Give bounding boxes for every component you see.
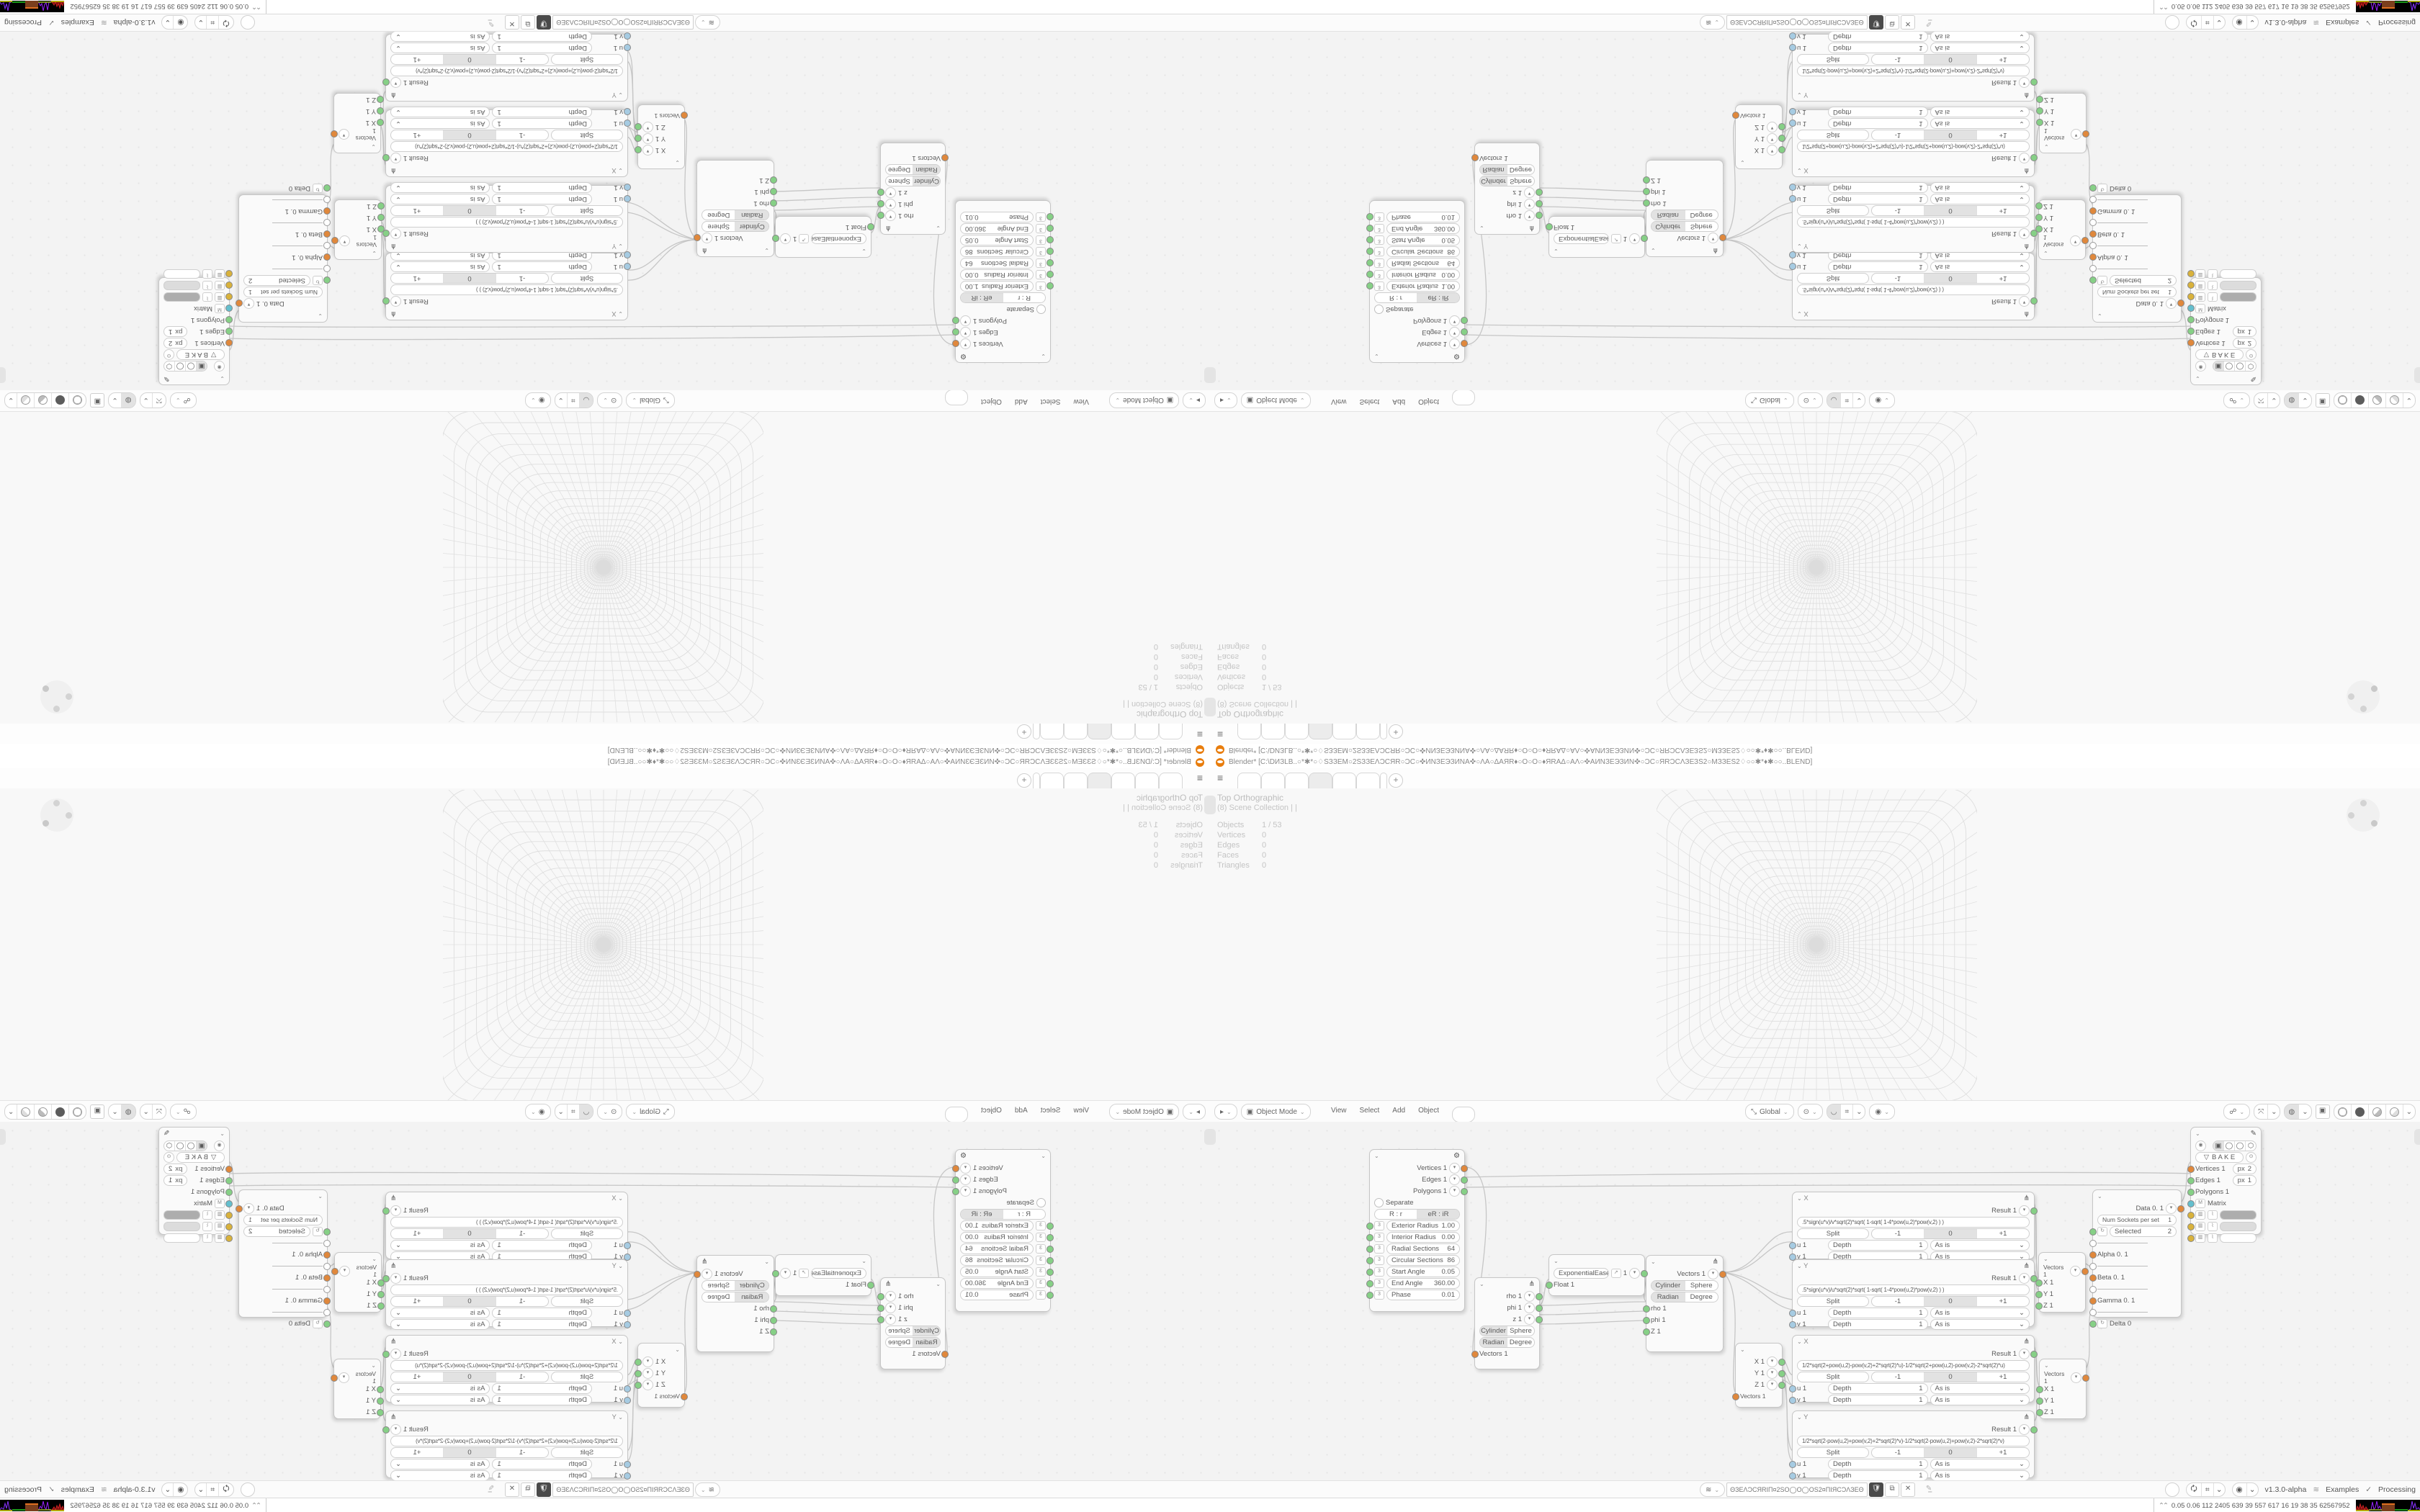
gizmo-toggle[interactable]: ⤧⌄ bbox=[2254, 1104, 2280, 1120]
workspace-tab[interactable] bbox=[1135, 723, 1159, 739]
viewport-3d[interactable]: Top Orthographic (8) Scene Collection | … bbox=[0, 788, 1210, 1100]
vertex-color-swatch[interactable] bbox=[2220, 1210, 2257, 1220]
depth-field[interactable]: Depth1 bbox=[493, 1470, 593, 1481]
draft-group[interactable]: ◉⌄ bbox=[2232, 1482, 2259, 1497]
face-color-swatch[interactable] bbox=[2220, 270, 2257, 279]
fake-user-button[interactable]: 🛡 bbox=[1869, 1482, 1883, 1497]
menu-add[interactable]: Add bbox=[1015, 390, 1028, 405]
copy-button[interactable]: ⧉ bbox=[1885, 15, 1899, 30]
display-toggle-group[interactable]: ▣◯◯⬡ bbox=[2213, 1140, 2257, 1151]
pivot-dropdown[interactable]: ⊙⌄ bbox=[597, 392, 622, 408]
tree-select-dropdown[interactable]: ≋⌄ bbox=[695, 15, 720, 30]
shading-mode-group[interactable]: ⌄ bbox=[4, 392, 86, 408]
torus-mode-segmented[interactable]: R : reR : iR bbox=[1374, 293, 1460, 304]
split-button[interactable]: Split bbox=[1797, 1447, 1869, 1458]
field-radial-sections[interactable]: Radial Sections64 bbox=[1386, 1243, 1460, 1254]
search-button[interactable] bbox=[945, 390, 968, 405]
workspace-tab-active[interactable] bbox=[1309, 723, 1332, 739]
mode-dropdown[interactable]: ▣ Object Mode⌄ bbox=[1109, 392, 1179, 408]
node-vector-polar-output[interactable]: ⌄⋔ rho 1▾ phi 1▾ z 1▾ CylinderSphere Rad… bbox=[1474, 143, 1540, 235]
node-formula-x2[interactable]: ⌄ X⋔ Result 1▾ 1/2*sqrt(2+pow(u,2)-pow(v… bbox=[1792, 109, 2035, 177]
examples-menu[interactable]: Examples bbox=[2326, 18, 2359, 27]
formula-expression-field[interactable]: .5*sign(u*v)/v*sqrt(2)*sqrt( 1-sqrt( 1-4… bbox=[390, 285, 623, 296]
field-interior-radius[interactable]: Interior Radius0.00 bbox=[1386, 270, 1460, 281]
coord-system-segmented[interactable]: CylinderSphere bbox=[1651, 1280, 1718, 1291]
angle-unit-segmented[interactable]: RadianDegree bbox=[1651, 1292, 1718, 1302]
ne-toolbar-collapse-tab[interactable] bbox=[1204, 1129, 1210, 1145]
pin-icon[interactable]: ✎̲ bbox=[485, 16, 498, 29]
depth-field[interactable]: Depth1 bbox=[1828, 1383, 1928, 1394]
pin-icon[interactable]: ✎̲ bbox=[1922, 1483, 1935, 1496]
field-start-angle[interactable]: Start Angle0.05 bbox=[1386, 235, 1460, 246]
node-formula-y2[interactable]: ⌄ Y⋔ Result 1▾ 1/2*sqrt(2-pow(u,2)+pow(v… bbox=[1792, 1410, 2035, 1478]
workspace-tab[interactable] bbox=[1237, 723, 1261, 739]
split-button[interactable]: Split bbox=[551, 1296, 623, 1307]
offset-segmented[interactable]: -10+1 bbox=[390, 1296, 549, 1307]
copy-button[interactable]: ⧉ bbox=[521, 1482, 535, 1497]
menu-add[interactable]: Add bbox=[1392, 390, 1405, 405]
split-button[interactable]: Split bbox=[551, 130, 623, 141]
node-vector-out[interactable]: ⌄ X 1▾ Y 1▾ Z 1▾ Vectors 1 bbox=[637, 1343, 685, 1408]
formula-expression-field[interactable]: 1/2*sqrt(2+pow(u,2)-pow(v,2)+2*sqrt(2)*u… bbox=[390, 1360, 623, 1371]
menu-add[interactable]: Add bbox=[1392, 1107, 1405, 1122]
field-radial-sections[interactable]: Radial Sections64 bbox=[960, 1243, 1034, 1254]
asis-dropdown[interactable]: As is⌄ bbox=[1930, 1308, 2030, 1318]
field-start-angle[interactable]: Start Angle0.05 bbox=[960, 1266, 1034, 1277]
asis-dropdown[interactable]: As is⌄ bbox=[390, 107, 490, 118]
depth-field[interactable]: Depth1 bbox=[1828, 262, 1928, 273]
node-vector-in-1[interactable]: ⌄ Vectors 1▾ X 1 Y 1 Z 1 bbox=[2038, 1252, 2086, 1313]
proportional-edit-dropdown[interactable]: ◉⌄ bbox=[525, 392, 550, 408]
snap-group[interactable]: ◡⌗⌄ bbox=[1827, 1104, 1866, 1120]
edge-width-field[interactable]: px1 bbox=[163, 327, 187, 338]
toolbar-collapse-tab[interactable] bbox=[1210, 796, 1216, 814]
vertex-color-swatch[interactable] bbox=[2220, 293, 2257, 302]
add-workspace-button[interactable]: + bbox=[1389, 724, 1403, 739]
shading-mode-group[interactable]: ⌄ bbox=[2334, 392, 2416, 408]
selected-field[interactable]: Selected2 bbox=[2110, 1226, 2177, 1237]
field-start-angle[interactable]: Start Angle0.05 bbox=[1386, 1266, 1460, 1277]
node-viewer-draw[interactable]: ⌄✎ ◉ ▣◯◯⬡ ▽B A K E⊙ Vertices 1 px2 Edges… bbox=[2190, 277, 2262, 385]
collapse-icon[interactable]: ⌃⌃ bbox=[2159, 1502, 2167, 1510]
depth-field[interactable]: Depth1 bbox=[493, 183, 593, 194]
workspace-tab[interactable] bbox=[1040, 773, 1064, 789]
offset-segmented[interactable]: -10+1 bbox=[1871, 1228, 2030, 1239]
display-toggle-group[interactable]: ▣◯◯⬡ bbox=[163, 361, 207, 372]
workspace-tab[interactable] bbox=[1033, 773, 1040, 789]
num-sockets-field[interactable]: Num Sockets per set1 bbox=[243, 1215, 323, 1225]
field-start-angle[interactable]: Start Angle0.05 bbox=[960, 235, 1034, 246]
node-data-input[interactable]: ⌄ Data 0. 1▾ Num Sockets per set1 ↻Selec… bbox=[2092, 194, 2182, 323]
angle-unit-segmented[interactable]: RadianDegree bbox=[885, 165, 941, 176]
overlays-toggle[interactable]: ◍⌄ bbox=[108, 392, 135, 408]
asis-dropdown[interactable]: As is⌄ bbox=[390, 194, 490, 205]
edge-width-field[interactable]: px1 bbox=[2233, 327, 2257, 338]
unlink-button[interactable]: ✕ bbox=[1901, 15, 1915, 30]
field-phase[interactable]: Phase0.01 bbox=[1386, 212, 1460, 223]
mode-dropdown[interactable]: ▣ Object Mode⌄ bbox=[1109, 1104, 1179, 1120]
asis-dropdown[interactable]: As is⌄ bbox=[1930, 43, 2030, 54]
node-formula-y1[interactable]: ⌄ Y⋔ Result 1▾ .5*sign(u*v)/u*sqrt(2)*sq… bbox=[1792, 1259, 2035, 1327]
split-button[interactable]: Split bbox=[551, 1447, 623, 1458]
editor-type-button[interactable]: ▸⌄ bbox=[1214, 1104, 1237, 1120]
hamburger-menu-icon[interactable]: ≡ bbox=[1217, 729, 1223, 740]
workspace-tab[interactable] bbox=[1111, 773, 1135, 789]
asis-dropdown[interactable]: As is⌄ bbox=[1930, 262, 2030, 273]
node-vector-polar-input[interactable]: ⌄⋔ Vectors 1▾ CylinderSphere RadianDegre… bbox=[696, 160, 774, 257]
node-vector-out[interactable]: ⌄ X 1▾ Y 1▾ Z 1▾ Vectors 1 bbox=[1735, 1343, 1783, 1408]
workspace-tab[interactable] bbox=[1356, 723, 1380, 739]
workspace-tab[interactable] bbox=[1040, 723, 1064, 739]
formula-expression-field[interactable]: .5*sign(u*v)/v*sqrt(2)*sqrt( 1-sqrt( 1-4… bbox=[390, 1217, 623, 1228]
offset-segmented[interactable]: -10+1 bbox=[1871, 55, 2030, 66]
depth-field[interactable]: Depth1 bbox=[493, 1395, 593, 1405]
menu-select[interactable]: Select bbox=[1041, 1107, 1061, 1122]
blank-circle-button[interactable] bbox=[241, 1482, 255, 1497]
fake-user-button[interactable]: 🛡 bbox=[537, 15, 551, 30]
bake-button[interactable]: ▽B A K E bbox=[176, 350, 225, 361]
depth-field[interactable]: Depth1 bbox=[1828, 1395, 1928, 1405]
field-interior-radius[interactable]: Interior Radius0.00 bbox=[960, 1232, 1034, 1243]
add-workspace-button[interactable]: + bbox=[1389, 773, 1403, 788]
num-sockets-field[interactable]: Num Sockets per set1 bbox=[2097, 287, 2177, 298]
workspace-tab-active[interactable] bbox=[1088, 773, 1111, 789]
node-formula-x1[interactable]: ⌄ X⋔ Result 1▾ .5*sign(u*v)/v*sqrt(2)*sq… bbox=[1792, 253, 2035, 320]
node-vector-out[interactable]: ⌄ X 1▾ Y 1▾ Z 1▾ Vectors 1 bbox=[1735, 104, 1783, 169]
node-torus[interactable]: ⌄⚙ Vertices 1▾ Edges 1▾ Polygons 1▾ Sepa… bbox=[955, 1149, 1051, 1312]
orientation-dropdown[interactable]: ⤡ Global⌄ bbox=[626, 1104, 675, 1120]
toolbar-collapse-tab[interactable] bbox=[1210, 698, 1216, 716]
asis-dropdown[interactable]: As is⌄ bbox=[390, 1308, 490, 1318]
tree-select-dropdown[interactable]: ≋⌄ bbox=[695, 1482, 720, 1497]
menu-object[interactable]: Object bbox=[1418, 1107, 1439, 1122]
overlays-toggle[interactable]: ◍⌄ bbox=[2284, 1104, 2311, 1120]
split-button[interactable]: Split bbox=[1797, 206, 1869, 217]
depth-field[interactable]: Depth1 bbox=[1828, 1319, 1928, 1330]
node-data-input[interactable]: ⌄ Data 0. 1▾ Num Sockets per set1 ↻Selec… bbox=[238, 1189, 328, 1318]
formula-expression-field[interactable]: .5*sign(u*v)/u*sqrt(2)*sqrt( 1-sqrt( 1-4… bbox=[390, 1284, 623, 1295]
xray-toggle[interactable]: ▣ bbox=[90, 1104, 104, 1119]
formula-expression-field[interactable]: .5*sign(u*v)/u*sqrt(2)*sqrt( 1-sqrt( 1-4… bbox=[390, 217, 623, 228]
asis-dropdown[interactable]: As is⌄ bbox=[390, 183, 490, 194]
selected-field[interactable]: Selected2 bbox=[2110, 276, 2177, 287]
update-group[interactable]: 🗘⌗⌄ bbox=[194, 15, 233, 30]
offset-segmented[interactable]: -10+1 bbox=[1871, 1447, 2030, 1458]
field-interior-radius[interactable]: Interior Radius0.00 bbox=[1386, 1232, 1460, 1243]
node-torus[interactable]: ⌄⚙ Vertices 1▾ Edges 1▾ Polygons 1▾ Sepa… bbox=[1369, 1149, 1465, 1312]
num-sockets-field[interactable]: Num Sockets per set1 bbox=[243, 287, 323, 298]
depth-field[interactable]: Depth1 bbox=[1828, 119, 1928, 130]
asis-dropdown[interactable]: As is⌄ bbox=[1930, 119, 2030, 130]
node-formula-y1[interactable]: ⌄ Y⋔ Result 1▾ .5*sign(u*v)/u*sqrt(2)*sq… bbox=[1792, 185, 2035, 253]
field-exterior-radius[interactable]: Exterior Radius1.00 bbox=[1386, 282, 1460, 292]
field-phase[interactable]: Phase0.01 bbox=[1386, 1290, 1460, 1300]
angle-unit-segmented[interactable]: RadianDegree bbox=[885, 1337, 941, 1348]
split-button[interactable]: Split bbox=[551, 1228, 623, 1239]
update-group[interactable]: 🗘⌗⌄ bbox=[2186, 1482, 2225, 1497]
orientation-dropdown[interactable]: ⤡ Global⌄ bbox=[626, 392, 675, 408]
angle-unit-segmented[interactable]: RadianDegree bbox=[1479, 1337, 1535, 1348]
split-button[interactable]: Split bbox=[551, 55, 623, 66]
edge-width-field[interactable]: px1 bbox=[2233, 1175, 2257, 1186]
depth-field[interactable]: Depth1 bbox=[493, 1308, 593, 1318]
menu-view[interactable]: View bbox=[1074, 390, 1090, 405]
ne-toolbar-collapse-tab[interactable] bbox=[1204, 367, 1210, 383]
field-exterior-radius[interactable]: Exterior Radius1.00 bbox=[960, 1220, 1034, 1231]
offset-segmented[interactable]: -10+1 bbox=[390, 1228, 549, 1239]
split-button[interactable]: Split bbox=[551, 206, 623, 217]
asis-dropdown[interactable]: As is⌄ bbox=[390, 119, 490, 130]
num-sockets-field[interactable]: Num Sockets per set1 bbox=[2097, 1215, 2177, 1225]
xray-toggle[interactable]: ▣ bbox=[2316, 393, 2330, 408]
select-tool-dropdown[interactable]: ☍⌄ bbox=[170, 392, 197, 408]
search-button[interactable] bbox=[1452, 1107, 1475, 1122]
menu-object[interactable]: Object bbox=[981, 390, 1002, 405]
blank-circle-button[interactable] bbox=[2165, 1482, 2179, 1497]
mode-dropdown[interactable]: ▣ Object Mode⌄ bbox=[1241, 392, 1311, 408]
vertex-color-swatch[interactable] bbox=[163, 293, 200, 302]
select-tool-dropdown[interactable]: ☍⌄ bbox=[2223, 1104, 2250, 1120]
unlink-button[interactable]: ✕ bbox=[505, 15, 519, 30]
snap-group[interactable]: ◡⌗⌄ bbox=[555, 392, 594, 408]
field-exterior-radius[interactable]: Exterior Radius1.00 bbox=[1386, 1220, 1460, 1231]
offset-segmented[interactable]: -10+1 bbox=[1871, 1296, 2030, 1307]
coord-system-segmented[interactable]: CylinderSphere bbox=[1651, 222, 1718, 233]
node-formula-x1[interactable]: ⌄ X⋔ Result 1▾ .5*sign(u*v)/v*sqrt(2)*sq… bbox=[1792, 1192, 2035, 1259]
workspace-tab[interactable] bbox=[1033, 723, 1040, 739]
node-formula-y2[interactable]: ⌄ Y⋔ Result 1▾ 1/2*sqrt(2-pow(u,2)+pow(v… bbox=[1792, 34, 2035, 102]
angle-unit-segmented[interactable]: RadianDegree bbox=[1651, 210, 1718, 221]
node-formula-y2[interactable]: ⌄ Y⋔ Result 1▾ 1/2*sqrt(2-pow(u,2)+pow(v… bbox=[385, 34, 628, 102]
gizmo-toggle[interactable]: ⤧⌄ bbox=[2254, 392, 2280, 408]
field-end-angle[interactable]: End Angle360.00 bbox=[960, 224, 1034, 235]
split-button[interactable]: Split bbox=[1797, 1296, 1869, 1307]
node-vector-in-1[interactable]: ⌄ Vectors 1▾ X 1 Y 1 Z 1 bbox=[334, 199, 382, 260]
node-vector-in-1[interactable]: ⌄ Vectors 1▾ X 1 Y 1 Z 1 bbox=[334, 1252, 382, 1313]
field-phase[interactable]: Phase0.01 bbox=[960, 1290, 1034, 1300]
tree-name-field[interactable]: ΘЗEΛϽϹЯRIΠ¤2SΟ◯Ο◯ΟS2¤ΠIЯϹϽΛЗEΘ bbox=[552, 1482, 694, 1497]
field-end-angle[interactable]: End Angle360.00 bbox=[1386, 224, 1460, 235]
release-button[interactable]: ⊙ bbox=[163, 1152, 174, 1163]
offset-segmented[interactable]: -10+1 bbox=[1871, 1372, 2030, 1382]
coord-system-segmented[interactable]: CylinderSphere bbox=[702, 1280, 769, 1291]
node-formula-y1[interactable]: ⌄ Y⋔ Result 1▾ .5*sign(u*v)/u*sqrt(2)*sq… bbox=[385, 1259, 628, 1327]
node-editor[interactable]: ⌄⚙ Vertices 1▾ Edges 1▾ Polygons 1▾ Sepa… bbox=[0, 1122, 1210, 1480]
split-button[interactable]: Split bbox=[1797, 55, 1869, 66]
examples-menu[interactable]: Examples bbox=[61, 18, 94, 27]
node-vector-polar-input[interactable]: ⌄⋔ Vectors 1▾ CylinderSphere RadianDegre… bbox=[1646, 1255, 1724, 1352]
proportional-edit-dropdown[interactable]: ◉⌄ bbox=[1869, 1104, 1894, 1120]
mode-dropdown[interactable]: ▣ Object Mode⌄ bbox=[1241, 1104, 1311, 1120]
asis-dropdown[interactable]: As is⌄ bbox=[1930, 194, 2030, 205]
bake-button[interactable]: ▽B A K E bbox=[2195, 350, 2244, 361]
menu-view[interactable]: View bbox=[1331, 1107, 1347, 1122]
field-radial-sections[interactable]: Radial Sections64 bbox=[1386, 258, 1460, 269]
separate-checkbox[interactable] bbox=[1036, 1198, 1046, 1207]
field-end-angle[interactable]: End Angle360.00 bbox=[1386, 1278, 1460, 1289]
node-vector-polar-output[interactable]: ⌄⋔ rho 1▾ phi 1▾ z 1▾ CylinderSphere Rad… bbox=[880, 143, 946, 235]
fake-user-button[interactable]: 🛡 bbox=[537, 1482, 551, 1497]
pivot-dropdown[interactable]: ⊙⌄ bbox=[1798, 1104, 1823, 1120]
display-toggle-group[interactable]: ▣◯◯⬡ bbox=[163, 1140, 207, 1151]
field-interior-radius[interactable]: Interior Radius0.00 bbox=[960, 270, 1034, 281]
menu-view[interactable]: View bbox=[1331, 390, 1347, 405]
draft-group[interactable]: ◉⌄ bbox=[161, 1482, 188, 1497]
angle-unit-segmented[interactable]: RadianDegree bbox=[702, 1292, 769, 1302]
viewport-3d[interactable]: Top Orthographic (8) Scene Collection | … bbox=[0, 412, 1210, 724]
vert-size-field[interactable]: px2 bbox=[2233, 1164, 2257, 1174]
field-circular-sections[interactable]: Circular Sections86 bbox=[960, 247, 1034, 258]
coord-system-segmented[interactable]: CylinderSphere bbox=[1479, 1326, 1535, 1336]
depth-field[interactable]: Depth1 bbox=[493, 262, 593, 273]
select-tool-dropdown[interactable]: ☍⌄ bbox=[2223, 392, 2250, 408]
node-formula-x2[interactable]: ⌄ X⋔ Result 1▾ 1/2*sqrt(2+pow(u,2)-pow(v… bbox=[385, 109, 628, 177]
coord-system-segmented[interactable]: CylinderSphere bbox=[702, 222, 769, 233]
draft-group[interactable]: ◉⌄ bbox=[161, 15, 188, 30]
bake-button[interactable]: ▽B A K E bbox=[2195, 1152, 2244, 1163]
orientation-dropdown[interactable]: ⤡ Global⌄ bbox=[1745, 1104, 1794, 1120]
tree-select-dropdown[interactable]: ≋⌄ bbox=[1700, 15, 1725, 30]
face-color-swatch[interactable] bbox=[163, 1233, 200, 1243]
navigation-gizmo[interactable] bbox=[2347, 680, 2380, 714]
depth-field[interactable]: Depth1 bbox=[493, 1383, 593, 1394]
field-radial-sections[interactable]: Radial Sections64 bbox=[960, 258, 1034, 269]
depth-field[interactable]: Depth1 bbox=[493, 107, 593, 118]
separate-checkbox[interactable] bbox=[1374, 1198, 1384, 1207]
node-formula-x2[interactable]: ⌄ X⋔ Result 1▾ 1/2*sqrt(2+pow(u,2)-pow(v… bbox=[385, 1335, 628, 1403]
asis-dropdown[interactable]: As is⌄ bbox=[390, 1470, 490, 1481]
node-easing[interactable]: ⌄ ExponentialEaseIn⌄ ↗1▾ Float 1 bbox=[1549, 1254, 1645, 1296]
node-vector-polar-input[interactable]: ⌄⋔ Vectors 1▾ CylinderSphere RadianDegre… bbox=[1646, 160, 1724, 257]
ne-sidebar-collapse-tab[interactable] bbox=[2414, 367, 2420, 383]
separate-checkbox[interactable] bbox=[1374, 305, 1384, 315]
field-circular-sections[interactable]: Circular Sections86 bbox=[1386, 247, 1460, 258]
workspace-tab[interactable] bbox=[1237, 773, 1261, 789]
activate-toggle[interactable]: ◉ bbox=[214, 361, 225, 372]
field-circular-sections[interactable]: Circular Sections86 bbox=[1386, 1255, 1460, 1266]
face-color-swatch[interactable] bbox=[2220, 1233, 2257, 1243]
torus-mode-segmented[interactable]: R : reR : iR bbox=[960, 1209, 1046, 1220]
node-torus[interactable]: ⌄⚙ Vertices 1▾ Edges 1▾ Polygons 1▾ Sepa… bbox=[955, 200, 1051, 363]
menu-object[interactable]: Object bbox=[1418, 390, 1439, 405]
release-button[interactable]: ⊙ bbox=[2246, 350, 2257, 361]
menu-view[interactable]: View bbox=[1074, 1107, 1090, 1122]
formula-expression-field[interactable]: 1/2*sqrt(2+pow(u,2)-pow(v,2)+2*sqrt(2)*u… bbox=[390, 142, 623, 153]
node-easing[interactable]: ⌄ ExponentialEaseIn⌄ ↗1▾ Float 1 bbox=[775, 1254, 871, 1296]
editor-type-button[interactable]: ▸⌄ bbox=[1214, 392, 1237, 408]
field-end-angle[interactable]: End Angle360.00 bbox=[960, 1278, 1034, 1289]
torus-mode-segmented[interactable]: R : reR : iR bbox=[960, 293, 1046, 304]
formula-expression-field[interactable]: 1/2*sqrt(2-pow(u,2)+pow(v,2)+2*sqrt(2)*v… bbox=[1797, 1436, 2030, 1446]
workspace-tab[interactable] bbox=[1135, 773, 1159, 789]
asis-dropdown[interactable]: As is⌄ bbox=[390, 1319, 490, 1330]
navigation-gizmo[interactable] bbox=[40, 680, 73, 714]
menu-select[interactable]: Select bbox=[1360, 390, 1380, 405]
tree-name-field[interactable]: ΘЗEΛϽϹЯRIΠ¤2SΟ◯Ο◯ΟS2¤ΠIЯϹϽΛЗEΘ bbox=[1726, 1482, 1868, 1497]
release-button[interactable]: ⊙ bbox=[2246, 1152, 2257, 1163]
ne-sidebar-collapse-tab[interactable] bbox=[0, 1129, 6, 1145]
examples-menu[interactable]: Examples bbox=[2326, 1485, 2359, 1494]
depth-field[interactable]: Depth1 bbox=[1828, 1240, 1928, 1251]
depth-field[interactable]: Depth1 bbox=[1828, 107, 1928, 118]
workspace-tab[interactable] bbox=[1285, 723, 1309, 739]
depth-field[interactable]: Depth1 bbox=[1828, 1470, 1928, 1481]
workspace-tab[interactable] bbox=[1285, 773, 1309, 789]
menu-select[interactable]: Select bbox=[1041, 390, 1061, 405]
offset-segmented[interactable]: -10+1 bbox=[390, 1372, 549, 1382]
processing-checkbox[interactable]: ✓ bbox=[48, 18, 55, 27]
field-phase[interactable]: Phase0.01 bbox=[960, 212, 1034, 223]
processing-checkbox[interactable]: ✓ bbox=[2365, 18, 2372, 27]
add-workspace-button[interactable]: + bbox=[1017, 724, 1031, 739]
offset-segmented[interactable]: -10+1 bbox=[390, 55, 549, 66]
update-group[interactable]: 🗘⌗⌄ bbox=[194, 1482, 233, 1497]
workspace-tab[interactable] bbox=[1356, 773, 1380, 789]
pin-icon[interactable]: ✎̲ bbox=[485, 1483, 498, 1496]
copy-button[interactable]: ⧉ bbox=[1885, 1482, 1899, 1497]
depth-field[interactable]: Depth1 bbox=[1828, 32, 1928, 42]
ne-toolbar-collapse-tab[interactable] bbox=[1210, 367, 1216, 383]
angle-unit-segmented[interactable]: RadianDegree bbox=[702, 210, 769, 221]
viewport-3d[interactable]: Top Orthographic (8) Scene Collection | … bbox=[1210, 788, 2420, 1100]
formula-expression-field[interactable]: .5*sign(u*v)/u*sqrt(2)*sqrt( 1-sqrt( 1-4… bbox=[1797, 217, 2030, 228]
fake-user-button[interactable]: 🛡 bbox=[1869, 15, 1883, 30]
asis-dropdown[interactable]: As is⌄ bbox=[390, 1459, 490, 1470]
node-editor[interactable]: ⌄⚙ Vertices 1▾ Edges 1▾ Polygons 1▾ Sepa… bbox=[0, 32, 1210, 390]
blank-circle-button[interactable] bbox=[241, 15, 255, 30]
pivot-dropdown[interactable]: ⊙⌄ bbox=[597, 1104, 622, 1120]
node-editor[interactable]: ⌄⚙ Vertices 1▾ Edges 1▾ Polygons 1▾ Sepa… bbox=[1210, 32, 2420, 390]
menu-add[interactable]: Add bbox=[1015, 1107, 1028, 1122]
asis-dropdown[interactable]: As is⌄ bbox=[390, 1240, 490, 1251]
depth-field[interactable]: Depth1 bbox=[493, 32, 593, 42]
node-torus[interactable]: ⌄⚙ Vertices 1▾ Edges 1▾ Polygons 1▾ Sepa… bbox=[1369, 200, 1465, 363]
proportional-edit-dropdown[interactable]: ◉⌄ bbox=[1869, 392, 1894, 408]
node-viewer-draw[interactable]: ⌄✎ ◉ ▣◯◯⬡ ▽B A K E⊙ Vertices 1 px2 Edges… bbox=[2190, 1127, 2262, 1235]
depth-field[interactable]: Depth1 bbox=[1828, 43, 1928, 54]
node-vector-in-2[interactable]: ⌄ Vectors 1▾ X 1 Y 1 Z 1 bbox=[2039, 1359, 2087, 1419]
easing-mode-dropdown[interactable]: ExponentialEaseIn⌄ bbox=[811, 234, 866, 245]
search-button[interactable] bbox=[945, 1107, 968, 1122]
coord-system-segmented[interactable]: CylinderSphere bbox=[885, 176, 941, 187]
formula-expression-field[interactable]: 1/2*sqrt(2-pow(u,2)+pow(v,2)+2*sqrt(2)*v… bbox=[390, 1436, 623, 1446]
release-button[interactable]: ⊙ bbox=[163, 350, 174, 361]
separate-checkbox[interactable] bbox=[1036, 305, 1046, 315]
workspace-tab[interactable] bbox=[1380, 773, 1387, 789]
gizmo-toggle[interactable]: ⤧⌄ bbox=[140, 392, 166, 408]
node-vector-polar-output[interactable]: ⌄⋔ rho 1▾ phi 1▾ z 1▾ CylinderSphere Rad… bbox=[880, 1277, 946, 1369]
workspace-tab[interactable] bbox=[1064, 723, 1088, 739]
vertex-color-swatch[interactable] bbox=[163, 1210, 200, 1220]
activate-toggle[interactable]: ◉ bbox=[2195, 361, 2206, 372]
easing-mode-dropdown[interactable]: ExponentialEaseIn⌄ bbox=[1554, 234, 1609, 245]
formula-expression-field[interactable]: .5*sign(u*v)/v*sqrt(2)*sqrt( 1-sqrt( 1-4… bbox=[1797, 285, 2030, 296]
selected-field[interactable]: Selected2 bbox=[243, 276, 310, 287]
node-formula-x2[interactable]: ⌄ X⋔ Result 1▾ 1/2*sqrt(2+pow(u,2)-pow(v… bbox=[1792, 1335, 2035, 1403]
node-vector-in-2[interactable]: ⌄ Vectors 1▾ X 1 Y 1 Z 1 bbox=[2039, 93, 2087, 153]
offset-segmented[interactable]: -10+1 bbox=[390, 1447, 549, 1458]
activate-toggle[interactable]: ◉ bbox=[214, 1140, 225, 1151]
offset-segmented[interactable]: -10+1 bbox=[1871, 206, 2030, 217]
menu-select[interactable]: Select bbox=[1360, 1107, 1380, 1122]
formula-expression-field[interactable]: 1/2*sqrt(2+pow(u,2)-pow(v,2)+2*sqrt(2)*u… bbox=[1797, 142, 2030, 153]
tree-name-field[interactable]: ΘЗEΛϽϹЯRIΠ¤2SΟ◯Ο◯ΟS2¤ΠIЯϹϽΛЗEΘ bbox=[552, 15, 694, 30]
formula-expression-field[interactable]: .5*sign(u*v)/v*sqrt(2)*sqrt( 1-sqrt( 1-4… bbox=[1797, 1217, 2030, 1228]
workspace-tab[interactable] bbox=[1332, 773, 1356, 789]
offset-segmented[interactable]: -10+1 bbox=[1871, 130, 2030, 141]
field-exterior-radius[interactable]: Exterior Radius1.00 bbox=[960, 282, 1034, 292]
depth-field[interactable]: Depth1 bbox=[493, 43, 593, 54]
